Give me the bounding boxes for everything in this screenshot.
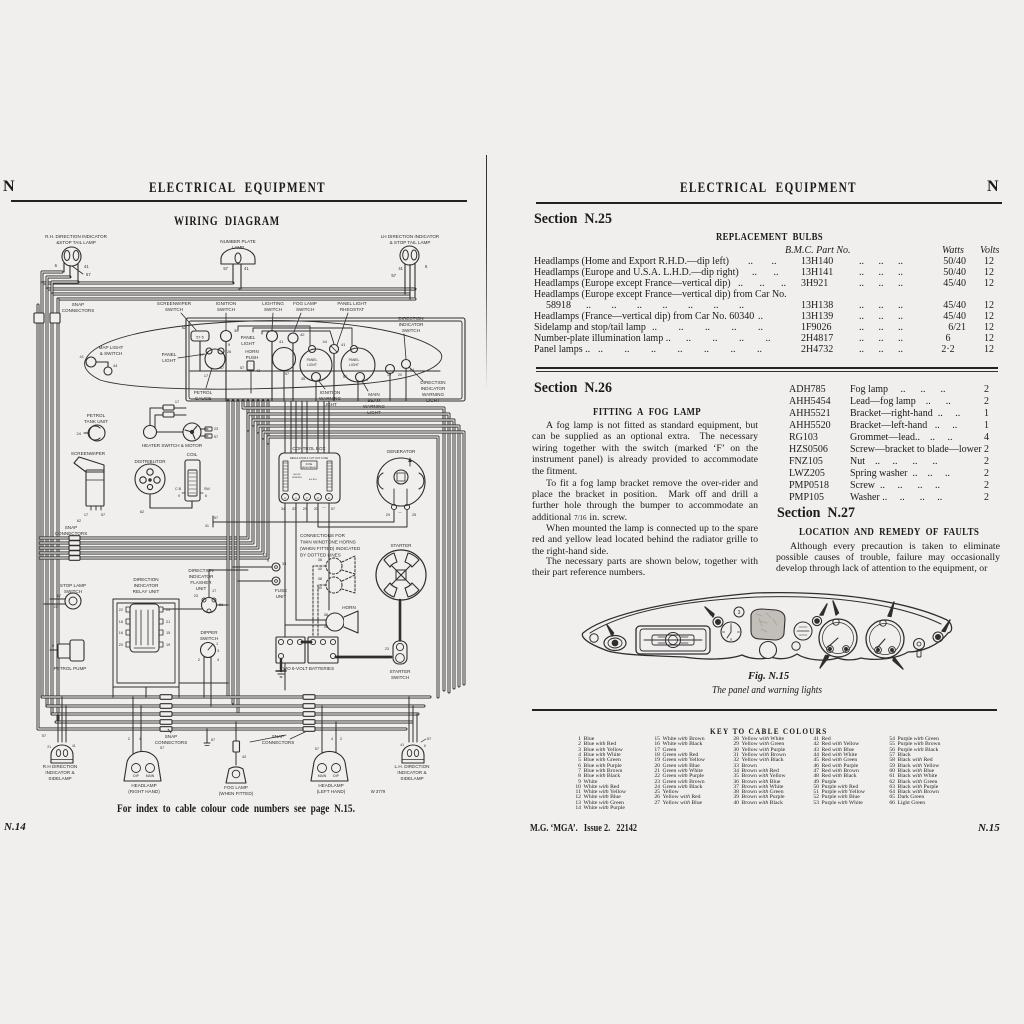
svg-text:41: 41 [80, 354, 85, 359]
svg-text:DIPPER: DIPPER [200, 630, 218, 635]
svg-text:LIGHT: LIGHT [241, 341, 255, 346]
svg-text:SW: SW [204, 487, 210, 491]
svg-text:41: 41 [279, 339, 284, 344]
svg-text:SWITCH: SWITCH [217, 307, 235, 312]
svg-text:R.H. DIRECTION INDICATOR: R.H. DIRECTION INDICATOR [45, 234, 108, 239]
svg-text:17: 17 [175, 400, 179, 404]
svg-text:UNIT: UNIT [196, 586, 207, 591]
svg-text:SWITCH: SWITCH [264, 307, 282, 312]
svg-text:57: 57 [160, 746, 164, 750]
svg-text:57: 57 [331, 507, 335, 511]
svg-text:41: 41 [400, 743, 404, 747]
svg-text:41: 41 [244, 266, 249, 271]
svg-text:WARNING: WARNING [319, 396, 341, 401]
svg-text:41: 41 [398, 266, 403, 271]
svg-text:BY DOTTED LINES: BY DOTTED LINES [300, 553, 341, 558]
svg-text:56: 56 [219, 603, 223, 607]
svg-text:4: 4 [139, 737, 141, 741]
svg-text:HEADLAMP: HEADLAMP [131, 783, 156, 788]
svg-text:19: 19 [166, 643, 170, 647]
svg-text:(WHEN FITTED): (WHEN FITTED) [219, 791, 254, 796]
svg-text:WARNING: WARNING [363, 404, 385, 409]
svg-text:RELAY UNIT: RELAY UNIT [133, 589, 160, 594]
svg-text:CONNECTORS: CONNECTORS [155, 740, 188, 745]
svg-text:17: 17 [204, 374, 208, 378]
svg-text:26: 26 [227, 350, 231, 354]
svg-text:38: 38 [318, 558, 322, 562]
svg-text:SWITCH: SWITCH [64, 589, 82, 594]
svg-text:DIRECTION: DIRECTION [188, 568, 213, 573]
svg-text:PANEL LIGHT: PANEL LIGHT [337, 301, 367, 306]
svg-text:62: 62 [182, 326, 186, 330]
svg-text:29: 29 [386, 513, 390, 517]
svg-text:NUMBER PLATE: NUMBER PLATE [220, 239, 255, 244]
svg-text:INDICATOR: INDICATOR [421, 386, 447, 391]
svg-text:STARTER: STARTER [390, 543, 412, 548]
svg-text:9: 9 [267, 559, 269, 563]
svg-text:LIGHTING: LIGHTING [262, 301, 284, 306]
svg-text:BEAM: BEAM [367, 398, 380, 403]
svg-text:57: 57 [42, 734, 46, 738]
svg-text:CONNECTORS: CONNECTORS [62, 308, 95, 313]
svg-text:24: 24 [77, 431, 82, 436]
svg-text:CONTROL BOX: CONTROL BOX [292, 446, 325, 451]
svg-text:FLASHER: FLASHER [190, 580, 212, 585]
svg-text:25: 25 [412, 513, 416, 517]
svg-text:17: 17 [57, 594, 61, 598]
svg-text:42: 42 [242, 755, 246, 759]
svg-text:23: 23 [194, 594, 198, 598]
svg-text:DIRECTION: DIRECTION [133, 577, 158, 582]
svg-text:17: 17 [84, 513, 88, 517]
svg-text:23: 23 [166, 608, 170, 612]
svg-text:22: 22 [119, 608, 123, 612]
svg-text:57: 57 [427, 737, 431, 741]
svg-text:4: 4 [331, 737, 333, 741]
svg-text:57: 57 [223, 266, 228, 271]
svg-text:R.H DIRECTION: R.H DIRECTION [43, 764, 77, 769]
svg-text:33: 33 [292, 507, 296, 511]
svg-text:SWITCH: SWITCH [391, 675, 409, 680]
svg-text:W 3779: W 3779 [371, 789, 386, 794]
svg-text:A: A [295, 496, 297, 500]
svg-text:SIDELAMP: SIDELAMP [400, 776, 423, 781]
svg-text:45: 45 [301, 377, 305, 381]
svg-text:D: D [317, 496, 319, 500]
svg-text:LH DIRECTION INDICATOR: LH DIRECTION INDICATOR [381, 234, 440, 239]
svg-text:57: 57 [315, 747, 319, 751]
svg-text:SWITCH: SWITCH [165, 307, 183, 312]
svg-text:22: 22 [54, 605, 58, 609]
svg-text:57: 57 [343, 375, 347, 379]
svg-text:(LEFT HAND): (LEFT HAND) [317, 789, 346, 794]
svg-text:A: A [284, 496, 286, 500]
svg-text:INDICATOR: INDICATOR [134, 583, 160, 588]
svg-text:6: 6 [205, 494, 207, 498]
svg-text:& SWITCH: & SWITCH [100, 351, 122, 356]
svg-text:57: 57 [391, 273, 396, 278]
svg-text:4: 4 [217, 658, 219, 662]
svg-text:MAIN: MAIN [368, 392, 379, 397]
svg-text:1: 1 [216, 642, 218, 646]
svg-text:57: 57 [86, 272, 91, 277]
svg-text:LIGHT: LIGHT [162, 358, 176, 363]
svg-text:57: 57 [211, 738, 215, 742]
svg-text:57·5: 57·5 [196, 336, 204, 340]
svg-text:HORN: HORN [245, 349, 259, 354]
svg-text:40: 40 [318, 586, 322, 590]
svg-text:25: 25 [314, 507, 318, 511]
svg-text:SNAP: SNAP [72, 302, 85, 307]
svg-text:29: 29 [303, 507, 307, 511]
svg-text:FUSE: FUSE [275, 588, 287, 593]
svg-text:41: 41 [72, 744, 76, 748]
svg-text:57: 57 [240, 366, 244, 370]
svg-text:33: 33 [282, 562, 286, 566]
svg-text:LIGHT: LIGHT [426, 398, 440, 403]
svg-text:TWIN WINDTONE HORNS: TWIN WINDTONE HORNS [300, 540, 356, 545]
svg-text:TANK UNIT: TANK UNIT [84, 419, 108, 424]
svg-text:LIGHT: LIGHT [323, 402, 337, 407]
svg-text:E: E [328, 496, 330, 500]
svg-text:PETROL: PETROL [87, 413, 106, 418]
svg-text:RESISTANCE: RESISTANCE [302, 466, 316, 469]
svg-text:9: 9 [52, 644, 54, 648]
svg-text:HEATER SWITCH & MOTOR: HEATER SWITCH & MOTOR [142, 443, 203, 448]
svg-text:SIDELAMP: SIDELAMP [48, 776, 71, 781]
svg-text:57: 57 [214, 516, 218, 520]
svg-text:INDICATOR &: INDICATOR & [397, 770, 426, 775]
svg-text:SHUNT: SHUNT [293, 474, 301, 476]
svg-text:RHEOSTAT: RHEOSTAT [340, 307, 365, 312]
svg-text:41: 41 [341, 342, 346, 347]
svg-text:SWITCH: SWITCH [402, 328, 420, 333]
svg-text:COIL: COIL [187, 452, 198, 457]
svg-text:STARTER: STARTER [389, 669, 411, 674]
svg-text:41: 41 [205, 524, 209, 528]
svg-text:6: 6 [424, 744, 426, 748]
svg-text:PETROL PUMP: PETROL PUMP [54, 666, 87, 671]
svg-text:IGNITION: IGNITION [216, 301, 236, 306]
svg-text:(WHEN FITTED) INDICATED: (WHEN FITTED) INDICATED [300, 546, 361, 551]
svg-text:A 5 RLS: A 5 RLS [309, 478, 318, 481]
svg-text:REGULATOR & CUT OUT FUSE: REGULATOR & CUT OUT FUSE [290, 456, 328, 460]
svg-text:LAMP: LAMP [232, 245, 245, 250]
svg-text:PUSH: PUSH [246, 355, 259, 360]
svg-text:SCREENWIPER: SCREENWIPER [157, 301, 192, 306]
svg-text:PANEL: PANEL [241, 335, 256, 340]
svg-text:STOP LAMP: STOP LAMP [60, 583, 86, 588]
svg-text:44: 44 [113, 363, 118, 368]
svg-text:CONNECTIONS FOR: CONNECTIONS FOR [300, 533, 346, 538]
svg-text:44: 44 [323, 339, 328, 344]
svg-text:57: 57 [214, 435, 218, 439]
svg-text:DIRECTION: DIRECTION [420, 380, 445, 385]
svg-text:(RIGHT HAND): (RIGHT HAND) [128, 789, 160, 794]
svg-text:17: 17 [212, 589, 216, 593]
svg-text:16: 16 [119, 631, 123, 635]
svg-text:HORN: HORN [342, 605, 356, 610]
svg-text:2: 2 [128, 737, 130, 741]
svg-text:15: 15 [166, 631, 170, 635]
svg-text:TWO 6-VOLT BATTERIES: TWO 6-VOLT BATTERIES [280, 666, 334, 671]
svg-text:62: 62 [140, 510, 144, 514]
svg-text:HEADLAMP: HEADLAMP [318, 783, 343, 788]
svg-text:LIGHT: LIGHT [367, 410, 381, 415]
svg-text:17: 17 [263, 553, 267, 557]
svg-text:UNIT: UNIT [276, 594, 287, 599]
svg-text:SWITCH: SWITCH [200, 636, 218, 641]
svg-text:MAIN: MAIN [146, 774, 155, 778]
svg-text:PETROL: PETROL [194, 390, 213, 395]
svg-text:DIP: DIP [133, 774, 139, 778]
svg-text:62: 62 [77, 519, 81, 523]
svg-text:MAIN: MAIN [318, 774, 327, 778]
svg-text:42: 42 [300, 332, 305, 337]
svg-text:INDICATOR &: INDICATOR & [45, 770, 74, 775]
svg-text:—: — [398, 510, 402, 514]
svg-text:WINDING: WINDING [292, 477, 302, 479]
svg-text:&STOP TAIL LAMP: &STOP TAIL LAMP [56, 240, 96, 245]
svg-text:DISTRIBUTOR: DISTRIBUTOR [134, 459, 166, 464]
svg-text:SNAP: SNAP [65, 525, 78, 530]
svg-text:40: 40 [318, 567, 322, 571]
svg-text:FOG LAMP: FOG LAMP [224, 785, 248, 790]
svg-text:GAUGE: GAUGE [195, 396, 212, 401]
svg-text:INDICATOR: INDICATOR [399, 322, 425, 327]
svg-text:9: 9 [178, 494, 180, 498]
svg-text:6: 6 [55, 263, 58, 268]
svg-text:CONNECTORS: CONNECTORS [262, 740, 295, 745]
svg-text:SWITCH: SWITCH [296, 307, 314, 312]
svg-text:2: 2 [198, 658, 200, 662]
svg-text:20: 20 [398, 373, 402, 377]
svg-text:LIGHT: LIGHT [307, 363, 317, 367]
svg-text:9: 9 [228, 342, 231, 347]
svg-text:WARNING: WARNING [422, 392, 444, 397]
svg-text:& STOP TAIL LAMP: & STOP TAIL LAMP [390, 240, 431, 245]
svg-text:PANEL: PANEL [307, 358, 318, 362]
svg-text:57: 57 [101, 513, 105, 517]
svg-text:SCREENWIPER: SCREENWIPER [71, 451, 106, 456]
svg-text:SNAP: SNAP [165, 734, 178, 739]
svg-text:LIGHT: LIGHT [349, 363, 359, 367]
svg-text:DIP: DIP [333, 774, 339, 778]
svg-text:2: 2 [340, 737, 342, 741]
svg-text:FUSE: FUSE [306, 463, 313, 466]
svg-text:38: 38 [324, 613, 328, 617]
svg-text:—: — [322, 505, 326, 509]
svg-text:L.H. DIRECTION: L.H. DIRECTION [395, 764, 430, 769]
svg-text:3: 3 [217, 649, 219, 653]
svg-text:57: 57 [220, 366, 224, 370]
svg-text:MAP LIGHT: MAP LIGHT [99, 345, 124, 350]
svg-text:PANEL: PANEL [349, 358, 360, 362]
svg-text:IGNITION: IGNITION [320, 390, 340, 395]
svg-text:4: 4 [366, 378, 368, 382]
svg-text:3: 3 [738, 610, 741, 616]
svg-text:6: 6 [425, 264, 428, 269]
svg-text:C.B: C.B [175, 487, 182, 491]
svg-text:21: 21 [47, 745, 51, 749]
svg-text:GENERATOR: GENERATOR [387, 449, 416, 454]
svg-text:38: 38 [318, 577, 322, 581]
svg-text:FOG LAMP: FOG LAMP [293, 301, 317, 306]
svg-text:INDICATOR: INDICATOR [189, 574, 215, 579]
svg-text:23: 23 [385, 647, 389, 651]
svg-text:57: 57 [285, 372, 289, 376]
svg-text:DIRECTION: DIRECTION [398, 316, 423, 321]
svg-text:PANEL: PANEL [162, 352, 177, 357]
svg-text:18: 18 [119, 620, 123, 624]
svg-text:21: 21 [166, 620, 170, 624]
svg-text:40: 40 [324, 625, 328, 629]
svg-text:23: 23 [214, 427, 218, 431]
svg-text:41: 41 [84, 264, 89, 269]
svg-text:34: 34 [281, 507, 285, 511]
svg-text:20: 20 [119, 643, 123, 647]
